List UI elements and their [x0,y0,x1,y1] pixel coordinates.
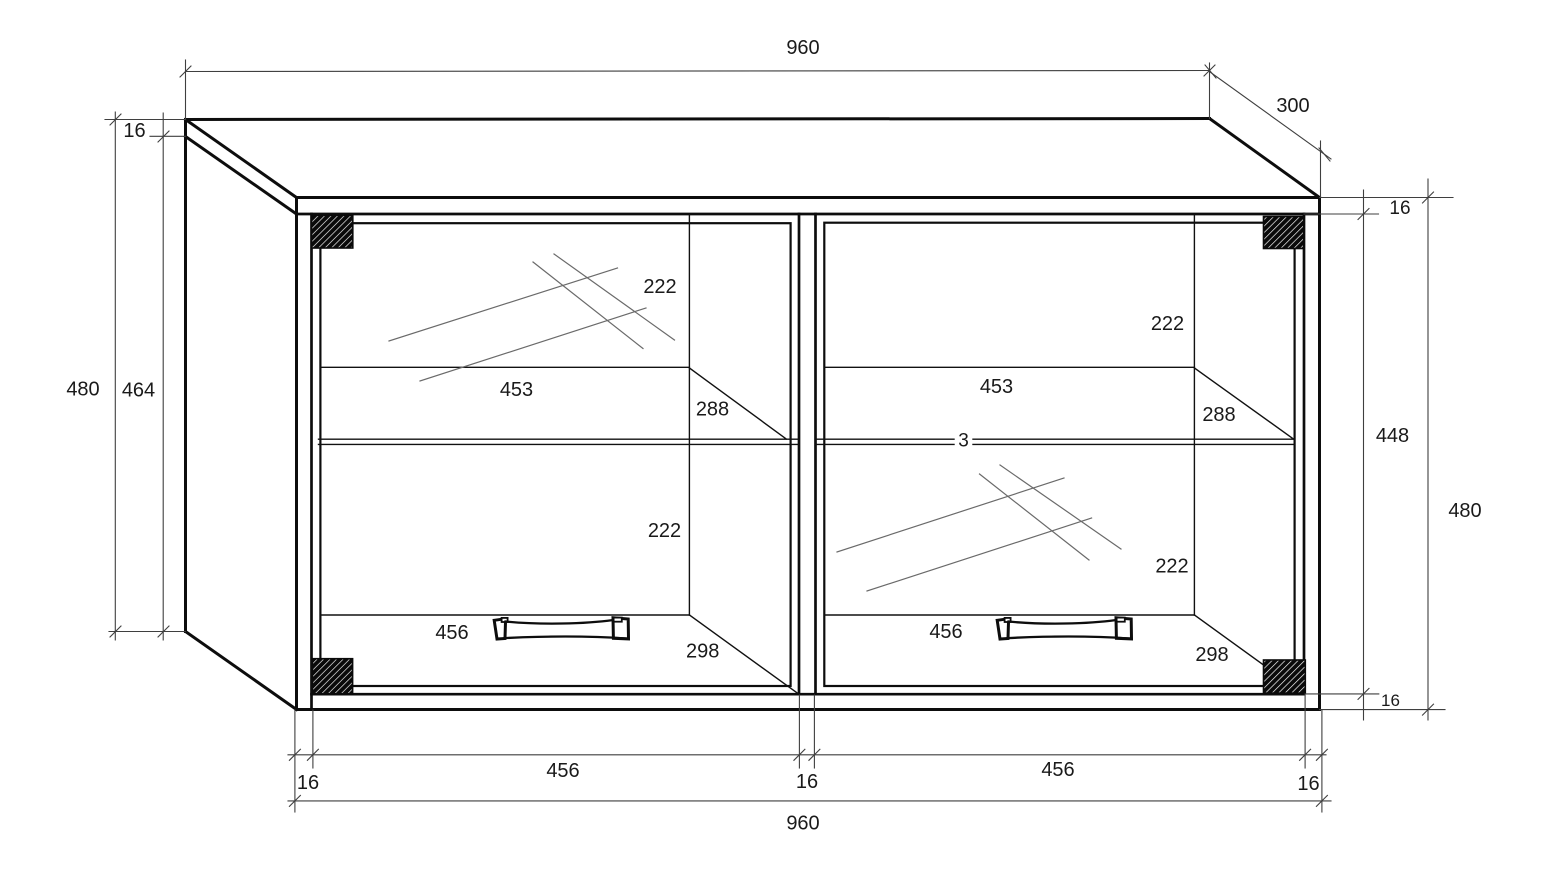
svg-text:298: 298 [1195,644,1228,666]
svg-text:16: 16 [123,120,145,142]
svg-text:300: 300 [1276,95,1309,117]
svg-text:448: 448 [1376,425,1409,447]
svg-text:222: 222 [643,276,676,298]
svg-text:288: 288 [1202,404,1235,426]
svg-text:288: 288 [696,399,729,421]
svg-text:480: 480 [66,379,99,401]
svg-text:16: 16 [297,772,319,794]
svg-text:456: 456 [1041,759,1074,781]
svg-text:16: 16 [1381,691,1400,710]
svg-text:456: 456 [435,622,468,644]
svg-text:960: 960 [786,813,819,835]
svg-text:960: 960 [786,37,819,59]
svg-text:453: 453 [980,376,1013,398]
svg-text:456: 456 [929,621,962,643]
svg-text:222: 222 [1155,556,1188,578]
svg-text:16: 16 [1389,198,1410,219]
svg-text:480: 480 [1448,500,1481,522]
svg-text:222: 222 [648,520,681,542]
svg-text:298: 298 [686,641,719,663]
svg-text:453: 453 [500,379,533,401]
svg-text:456: 456 [546,760,579,782]
svg-text:3: 3 [958,431,969,452]
svg-text:464: 464 [122,380,155,402]
svg-text:16: 16 [796,771,818,793]
svg-text:222: 222 [1151,313,1184,335]
svg-text:16: 16 [1297,773,1319,795]
